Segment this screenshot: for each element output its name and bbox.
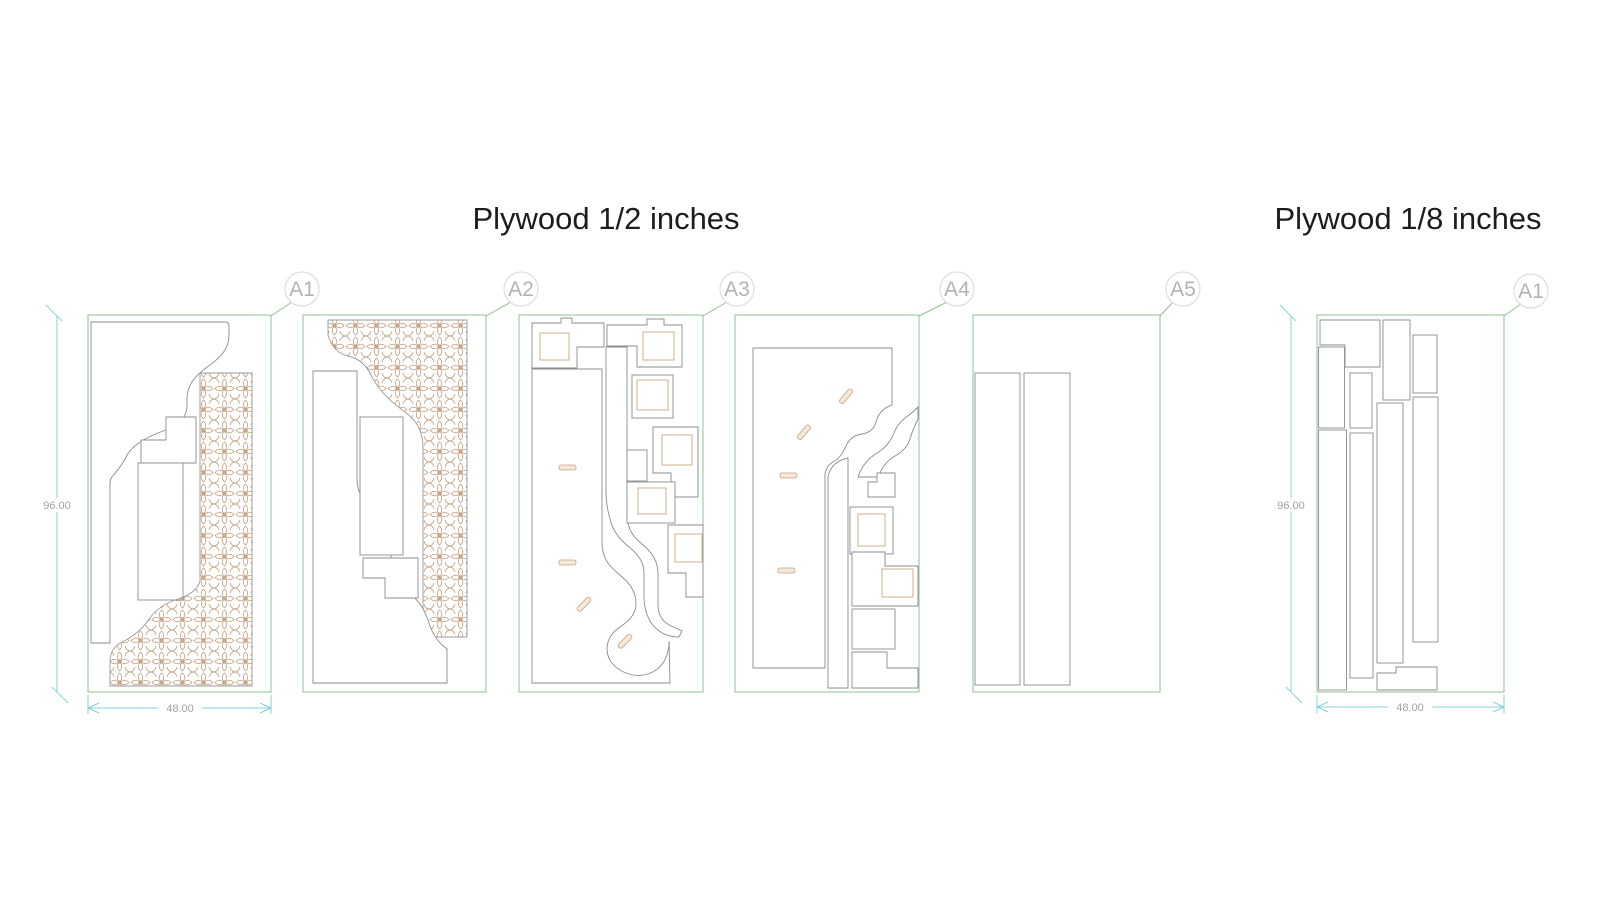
part-plank [975,373,1020,685]
part-rectangle [360,417,403,555]
label-a5-text: A5 [1170,278,1196,301]
part-frame-tile [632,375,673,418]
sheet-a2 [303,315,486,692]
label-r1-leader [1504,304,1521,316]
sheet-a5 [973,315,1160,692]
label-a4-leader [919,302,947,316]
dimension-a1-width: 48.00 [88,695,271,715]
dim-height-value: 96.00 [1277,500,1305,512]
dim-tick [46,305,62,321]
dim-width-value: 48.00 [166,703,194,715]
sheet-r1 [1317,315,1504,692]
label-a3: A3 [703,272,754,316]
label-a5: A5 [1160,272,1200,316]
part-plank [1383,320,1410,400]
part-rectangle [627,450,647,481]
dim-tick [1286,687,1302,703]
part-plank [1413,397,1438,642]
dim-tick [1280,305,1296,321]
dim-height-value: 96.00 [43,500,71,512]
part-plank [1413,335,1437,393]
part-plank [1350,433,1373,678]
label-a1-text: A1 [289,278,315,301]
part-plank [1024,373,1070,685]
nesting-drawing: A1 A2 A3 A4 A5 [0,0,1600,900]
label-a4-text: A4 [944,278,970,301]
sheet-a3 [519,315,703,692]
label-a3-leader [703,302,727,316]
label-a3-text: A3 [724,278,750,301]
part-plank [1350,373,1372,428]
label-a2-leader [486,302,511,316]
label-r1: A1 [1504,274,1548,316]
label-a2: A2 [486,272,538,316]
label-a2-text: A2 [508,278,534,301]
sheet-a4 [735,315,919,692]
dimension-r1-width: 48.00 [1317,695,1504,714]
part-stick [778,568,795,573]
part-plank [1319,430,1347,690]
part-stick [559,560,576,565]
sheet-a1 [88,315,271,692]
cut-layout-page: Plywood 1/2 inches Plywood 1/8 inches [0,0,1600,900]
label-r1-text: A1 [1518,280,1544,303]
part-plank [1319,347,1345,428]
dim-tick [52,687,68,703]
label-a5-leader [1160,302,1173,316]
dimension-a1-height: 96.00 [38,305,76,703]
label-a4: A4 [919,272,974,316]
part-rectangle [852,609,895,649]
label-a1: A1 [271,272,319,316]
label-a1-leader [271,302,292,316]
part-plank [1377,403,1403,663]
part-stick [780,473,797,478]
part-stick [559,465,576,470]
part-rectangle [138,463,183,600]
part-curved-strip [828,458,848,688]
dimension-r1-height: 96.00 [1272,305,1310,703]
dim-width-value: 48.00 [1396,702,1424,714]
sheet-labels: A1 A2 A3 A4 A5 [271,272,1548,316]
